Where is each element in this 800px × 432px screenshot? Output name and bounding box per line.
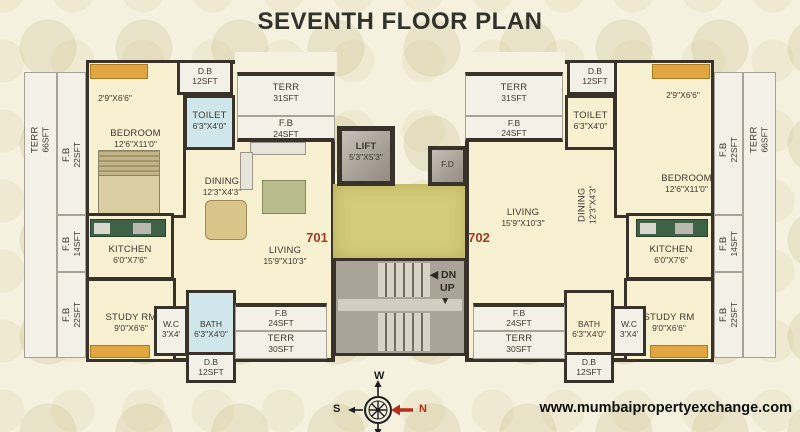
stairs-up-arrow-icon: ▼ — [430, 295, 450, 307]
website-url: www.mumbaipropertyexchange.com — [540, 400, 792, 416]
fb-bottom-702: F.B24SFT — [473, 303, 565, 331]
kitchen-701-label: KITCHEN6'0"X7'6" — [92, 244, 168, 265]
terrace-top-701: TERR31SFT — [237, 72, 335, 116]
compass-south-label: S — [333, 403, 340, 415]
unit-number-701: 701 — [300, 230, 334, 245]
fb-left-top-label: F.B22SFT — [57, 110, 86, 200]
fb-top-702: F.B24SFT — [465, 116, 563, 142]
terrace-top-702: TERR31SFT — [465, 72, 563, 116]
rug — [262, 180, 306, 214]
fb-right-bottom-label: F.B22SFT — [714, 272, 743, 358]
room-toilet-701: TOILET6'3"X4'0" — [184, 95, 235, 150]
balcony-dim-701: 2'9"X6'6" — [85, 93, 145, 103]
wardrobe-702 — [652, 64, 710, 79]
fb-bottom-701: F.B24SFT — [235, 303, 327, 331]
fb-left-mid-label: F.B14SFT — [57, 215, 86, 272]
room-bath-701: BATH6'3"X4'0" — [186, 290, 236, 356]
terrace-right-label: TERR66SFT — [743, 80, 776, 200]
balcony-dim-702: 2'9"X6'6" — [654, 90, 712, 100]
stairs-dn-label: DN — [441, 269, 456, 281]
living-701-label: LIVING15'9"X10'3" — [245, 245, 325, 266]
wardrobe-701 — [90, 64, 148, 79]
sofa — [250, 142, 306, 155]
compass-north-label: N — [419, 403, 427, 415]
room-wc-701: W.C3'X4' — [154, 306, 188, 356]
duct-db-bottom-702: D.B12SFT — [564, 352, 614, 383]
bedroom-701-label: BEDROOM12'6"X11'0" — [93, 128, 178, 149]
backdrop-cover-left — [235, 52, 337, 72]
room-bath-702: BATH6'3"X4'0" — [564, 290, 614, 356]
fb-left-bottom-label: F.B22SFT — [57, 272, 86, 358]
fb-right-mid-label: F.B14SFT — [714, 215, 743, 272]
stairs-dn-arrow-icon: ◀ — [430, 269, 438, 281]
floor-plan-page: SEVENTH FLOOR PLAN TERR66SFT F.B22SFT F.… — [0, 0, 800, 432]
duct-db-top-701: D.B12SFT — [177, 60, 233, 95]
fb-right-top-label: F.B22SFT — [714, 100, 743, 200]
room-toilet-702: TOILET6'3"X4'0" — [565, 95, 616, 150]
stairs-up-label: UP — [430, 282, 455, 294]
kitchen-counter-702 — [636, 219, 708, 237]
staircase: ◀ DN UP ▼ — [333, 258, 467, 356]
unit-number-702: 702 — [462, 230, 496, 245]
dining-table — [205, 200, 247, 240]
compass: W S N — [325, 370, 435, 432]
fire-duct: F.D — [428, 146, 467, 186]
terrace-bottom-701: TERR30SFT — [235, 331, 327, 359]
dining-702-label: DINING12'3"X4'3" — [572, 172, 602, 238]
study-cabinet-702 — [650, 345, 708, 358]
backdrop-cover-right — [463, 52, 565, 72]
fb-top-701: F.B24SFT — [237, 116, 335, 142]
room-bedroom-702 — [614, 60, 714, 218]
terrace-left-label: TERR66SFT — [24, 80, 57, 200]
lift: LIFT5'3"X5'3" — [337, 126, 395, 186]
study-cabinet-701 — [90, 345, 150, 358]
room-wc-702: W.C3'X4' — [612, 306, 646, 356]
sofa-side — [240, 152, 253, 190]
living-702-label: LIVING15'9"X10'3" — [483, 207, 563, 228]
kitchen-702-label: KITCHEN6'0"X7'6" — [632, 244, 710, 265]
kitchen-counter-701 — [90, 219, 166, 237]
bed — [98, 150, 160, 216]
terrace-bottom-702: TERR30SFT — [473, 331, 565, 359]
lobby — [333, 184, 467, 260]
page-title: SEVENTH FLOOR PLAN — [0, 8, 800, 36]
duct-db-bottom-701: D.B12SFT — [186, 352, 236, 383]
compass-west-label: W — [374, 370, 384, 382]
